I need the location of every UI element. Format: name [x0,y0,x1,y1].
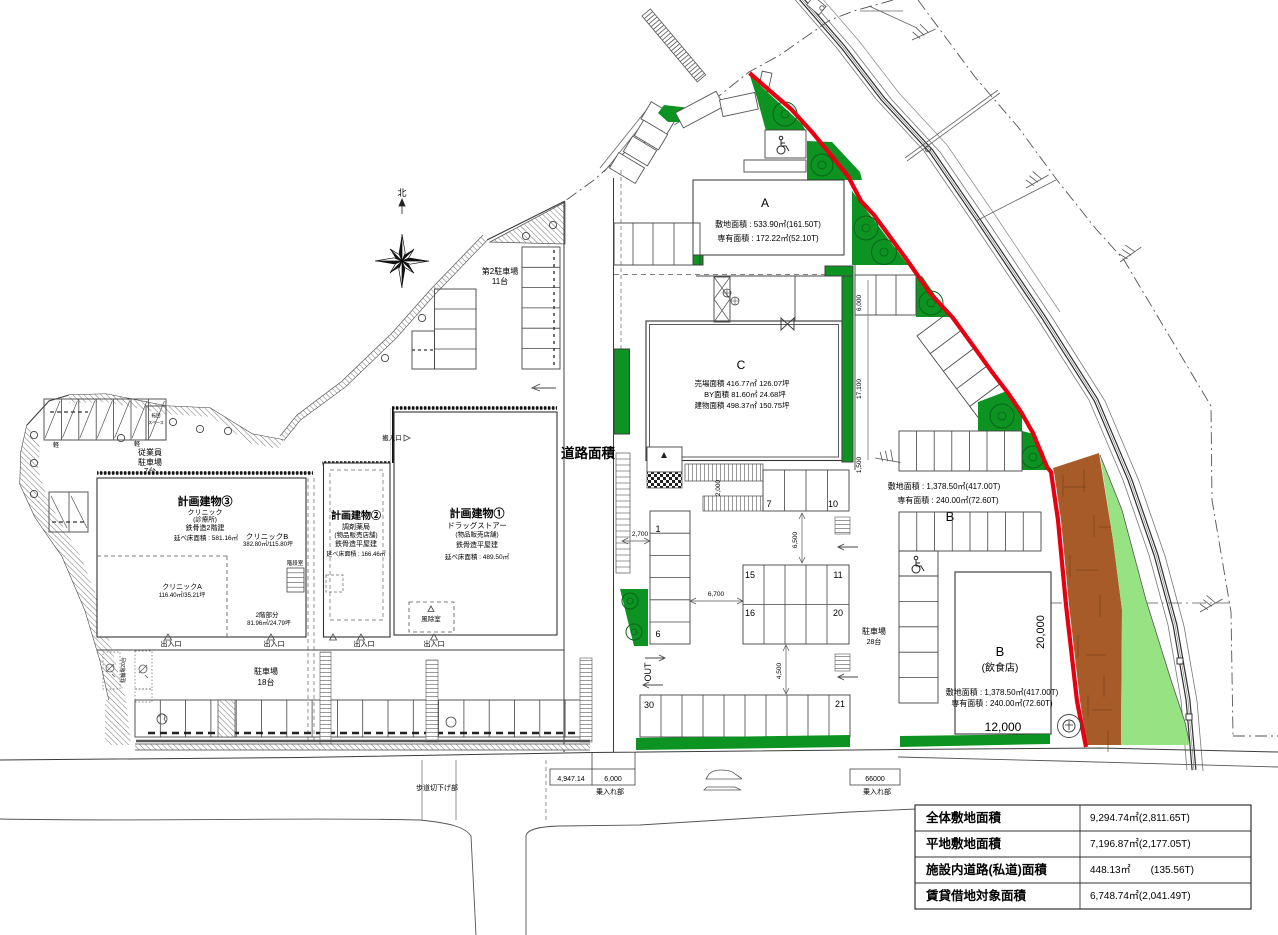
svg-text:6,700: 6,700 [708,591,725,598]
svg-text:クリニック: クリニック [188,509,223,517]
svg-text:18台: 18台 [258,677,275,687]
svg-text:売場面積 416.77㎡ 126.07坪: 売場面積 416.77㎡ 126.07坪 [694,378,790,388]
svg-text:延べ床面積 : 581.16㎡: 延べ床面積 : 581.16㎡ [174,533,239,542]
svg-text:敷地面積 : 533.90㎡(161.50T): 敷地面積 : 533.90㎡(161.50T) [715,219,821,229]
svg-text:6,000: 6,000 [856,294,863,311]
svg-text:28台: 28台 [867,637,882,646]
svg-text:2,000: 2,000 [715,479,722,496]
svg-text:66000: 66000 [865,776,885,783]
svg-text:B: B [946,509,955,524]
svg-text:6,000: 6,000 [604,776,622,783]
svg-text:(診療所): (診療所) [193,515,217,524]
svg-text:OUT: OUT [643,662,653,682]
svg-text:駐車場: 駐車場 [138,457,162,467]
svg-text:2,700: 2,700 [632,531,649,538]
svg-text:6,748.74㎡(2,041.49T): 6,748.74㎡(2,041.49T) [1090,890,1191,902]
svg-text:30: 30 [644,700,654,710]
svg-text:専有面積 : 240.00㎡(72.60T): 専有面積 : 240.00㎡(72.60T) [951,698,1053,708]
svg-text:20: 20 [833,608,843,618]
svg-text:駐車場: 駐車場 [254,666,278,676]
svg-text:7: 7 [766,499,771,509]
svg-text:クリニックB: クリニックB [246,532,289,541]
svg-text:専有面積 : 240.00㎡(72.60T): 専有面積 : 240.00㎡(72.60T) [897,495,999,505]
svg-text:15: 15 [745,570,755,580]
svg-text:スペース: スペース [148,419,164,425]
svg-text:搬入口: 搬入口 [382,433,402,442]
svg-text:81.96㎡/24.79坪: 81.96㎡/24.79坪 [247,619,291,627]
svg-text:10: 10 [828,499,838,509]
svg-text:風除室: 風除室 [421,614,441,623]
svg-text:17,100: 17,100 [856,379,863,399]
svg-text:専有面積 : 172.22㎡(52.10T): 専有面積 : 172.22㎡(52.10T) [717,233,819,243]
svg-text:第2駐車場: 第2駐車場 [482,266,518,276]
svg-text:敷地面積 : 1,378.50㎡(417.00T): 敷地面積 : 1,378.50㎡(417.00T) [888,481,1001,491]
svg-text:軽: 軽 [134,440,140,448]
svg-text:11: 11 [833,570,842,580]
svg-text:1: 1 [655,524,660,534]
svg-text:計画建物②: 計画建物② [331,509,381,522]
svg-text:BY面積 81.60㎡ 24.68坪: BY面積 81.60㎡ 24.68坪 [704,389,786,399]
svg-text:鉄骨造平屋建: 鉄骨造平屋建 [456,540,498,549]
svg-text:建物面積 498.37㎡ 150.75坪: 建物面積 498.37㎡ 150.75坪 [694,400,790,410]
svg-text:ドラッグストアー: ドラッグストアー [447,520,507,530]
svg-text:駐輪場20台: 駐輪場20台 [120,657,127,683]
svg-text:382.80㎡/115.80坪: 382.80㎡/115.80坪 [243,540,293,548]
svg-text:7,196.87㎡(2,177.05T): 7,196.87㎡(2,177.05T) [1090,838,1191,850]
svg-text:鉄骨造2階建: 鉄骨造2階建 [186,523,225,532]
svg-text:11台: 11台 [492,276,508,286]
svg-text:駐車場: 駐車場 [862,626,886,636]
svg-text:12,000: 12,000 [985,720,1022,734]
svg-text:敷地面積 : 1,378.50㎡(417.00T): 敷地面積 : 1,378.50㎡(417.00T) [946,687,1059,697]
svg-text:2階部分: 2階部分 [255,610,279,619]
svg-text:階段室: 階段室 [287,559,304,567]
svg-text:4,947.14: 4,947.14 [557,776,584,783]
svg-text:乗入れ部: 乗入れ部 [596,787,624,796]
svg-text:平地敷地面積: 平地敷地面積 [926,836,1002,851]
svg-text:6: 6 [655,629,660,639]
svg-text:クリニックA: クリニックA [162,583,202,591]
svg-text:施設内道路(私道)面積: 施設内道路(私道)面積 [926,862,1047,877]
svg-text:A: A [761,196,769,210]
svg-text:B: B [996,644,1005,659]
svg-text:(飲食店): (飲食店) [982,661,1019,674]
svg-text:計画建物①: 計画建物① [450,506,505,520]
svg-text:延べ床面積 : 489.50㎡: 延べ床面積 : 489.50㎡ [445,552,510,561]
svg-text:16: 16 [745,608,755,618]
svg-text:全体敷地面積: 全体敷地面積 [925,810,1002,825]
svg-text:4,500: 4,500 [776,662,783,679]
svg-text:(物品販売店舗): (物品販売店舗) [334,530,377,539]
svg-text:歩道切下げ部: 歩道切下げ部 [416,783,458,792]
svg-text:C: C [737,358,746,372]
svg-text:従業員: 従業員 [138,447,162,457]
svg-text:賃貸借地対象面積: 賃貸借地対象面積 [925,888,1027,903]
svg-text:調剤薬局: 調剤薬局 [342,522,370,531]
svg-text:9,294.74㎡(2,811.65T): 9,294.74㎡(2,811.65T) [1090,812,1190,824]
svg-text:乗入れ部: 乗入れ部 [863,787,891,796]
svg-text:鉄骨造平屋建: 鉄骨造平屋建 [335,539,377,548]
svg-text:北: 北 [397,188,406,198]
svg-text:計画建物③: 計画建物③ [178,494,233,508]
svg-text:延べ床面積 : 166.46㎡: 延べ床面積 : 166.46㎡ [326,550,385,558]
svg-text:21: 21 [835,699,845,709]
svg-text:道路面積: 道路面積 [561,445,615,461]
svg-text:116.40㎡/35.21坪: 116.40㎡/35.21坪 [159,591,206,599]
svg-text:1,500: 1,500 [856,456,863,473]
svg-text:軽: 軽 [53,441,59,449]
svg-text:20,000: 20,000 [1035,615,1047,649]
svg-text:448.13㎡ (135.56T): 448.13㎡ (135.56T) [1090,864,1194,876]
svg-text:(物品販売店舗): (物品販売店舗) [455,530,498,539]
svg-text:6,500: 6,500 [792,531,799,548]
